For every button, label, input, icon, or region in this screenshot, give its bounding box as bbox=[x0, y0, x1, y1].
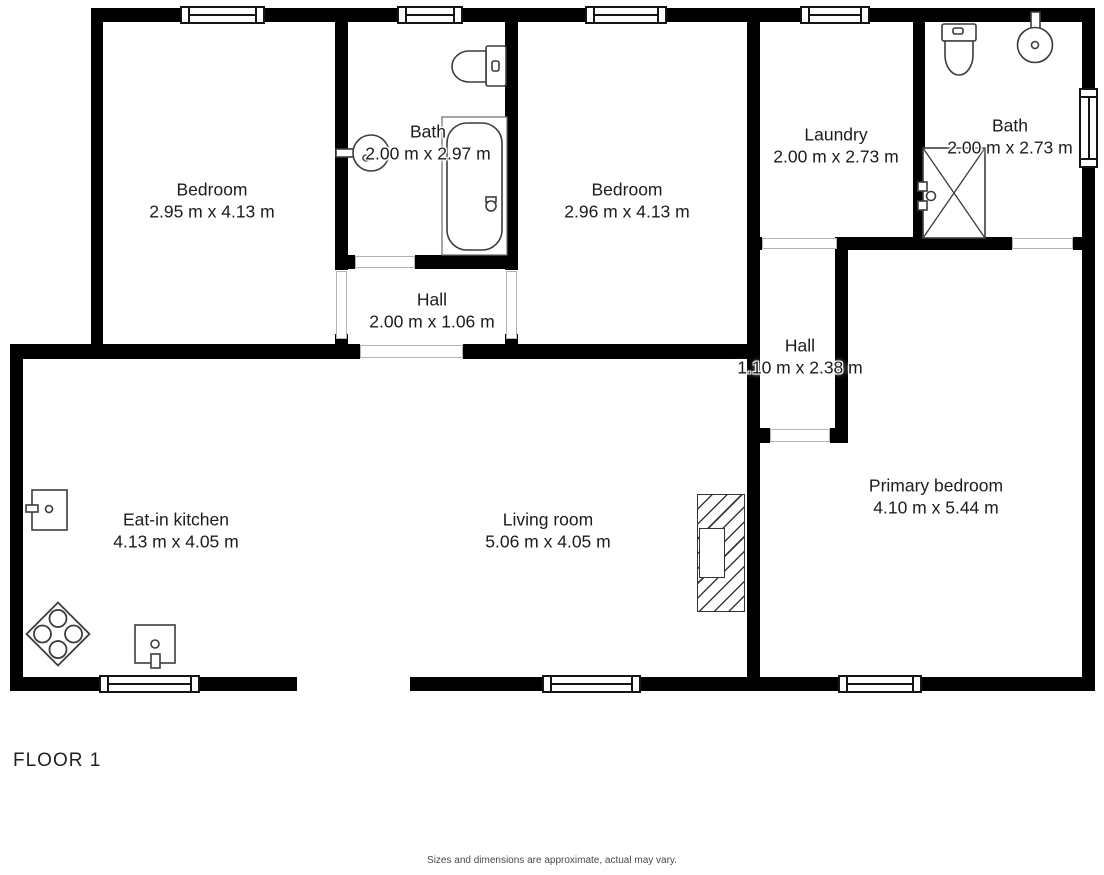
room-label-eat-in-kitchen: Eat-in kitchen4.13 m x 4.05 m bbox=[113, 510, 238, 553]
room-label-bedroom-2: Bedroom2.96 m x 4.13 m bbox=[564, 180, 689, 223]
room-name: Bath bbox=[947, 116, 1072, 138]
room-dimensions: 5.06 m x 4.05 m bbox=[485, 531, 610, 553]
room-dimensions: 2.00 m x 2.73 m bbox=[773, 146, 898, 168]
room-label-hall-1: Hall2.00 m x 1.06 m bbox=[369, 290, 494, 333]
room-name: Bath bbox=[365, 122, 490, 144]
room-label-primary-bedroom: Primary bedroom4.10 m x 5.44 m bbox=[869, 476, 1003, 519]
room-label-living-room: Living room5.06 m x 4.05 m bbox=[485, 510, 610, 553]
floor-label: FLOOR 1 bbox=[13, 750, 101, 772]
room-name: Hall bbox=[737, 336, 862, 358]
room-name: Living room bbox=[485, 510, 610, 532]
room-dimensions: 2.00 m x 2.97 m bbox=[365, 143, 490, 165]
room-dimensions: 4.13 m x 4.05 m bbox=[113, 531, 238, 553]
room-name: Primary bedroom bbox=[869, 476, 1003, 498]
room-label-hall-2: Hall1.10 m x 2.38 m bbox=[737, 336, 862, 379]
room-dimensions: 2.96 m x 4.13 m bbox=[564, 201, 689, 223]
room-dimensions: 2.00 m x 2.73 m bbox=[947, 137, 1072, 159]
toilet-icon bbox=[942, 24, 976, 75]
room-name: Bedroom bbox=[149, 180, 274, 202]
room-label-bedroom-1: Bedroom2.95 m x 4.13 m bbox=[149, 180, 274, 223]
room-dimensions: 4.10 m x 5.44 m bbox=[869, 497, 1003, 519]
dishwasher-icon bbox=[135, 625, 175, 668]
floor-plan-canvas: Bedroom2.95 m x 4.13 mBath2.00 m x 2.97 … bbox=[0, 0, 1104, 875]
shower-icon bbox=[918, 148, 985, 238]
room-label-bath-1: Bath2.00 m x 2.97 m bbox=[365, 122, 490, 165]
room-label-bath-2: Bath2.00 m x 2.73 m bbox=[947, 116, 1072, 159]
room-name: Laundry bbox=[773, 125, 898, 147]
room-label-laundry: Laundry2.00 m x 2.73 m bbox=[773, 125, 898, 168]
room-name: Bedroom bbox=[564, 180, 689, 202]
disclaimer-text: Sizes and dimensions are approximate, ac… bbox=[0, 855, 1104, 866]
fridge-icon bbox=[26, 490, 67, 530]
fixtures-layer bbox=[0, 0, 1104, 875]
stove-icon bbox=[27, 603, 90, 666]
room-dimensions: 1.10 m x 2.38 m bbox=[737, 357, 862, 379]
room-dimensions: 2.00 m x 1.06 m bbox=[369, 311, 494, 333]
room-name: Hall bbox=[369, 290, 494, 312]
toilet-icon bbox=[452, 46, 506, 86]
room-name: Eat-in kitchen bbox=[113, 510, 238, 532]
room-dimensions: 2.95 m x 4.13 m bbox=[149, 201, 274, 223]
sink-icon bbox=[1018, 12, 1053, 63]
